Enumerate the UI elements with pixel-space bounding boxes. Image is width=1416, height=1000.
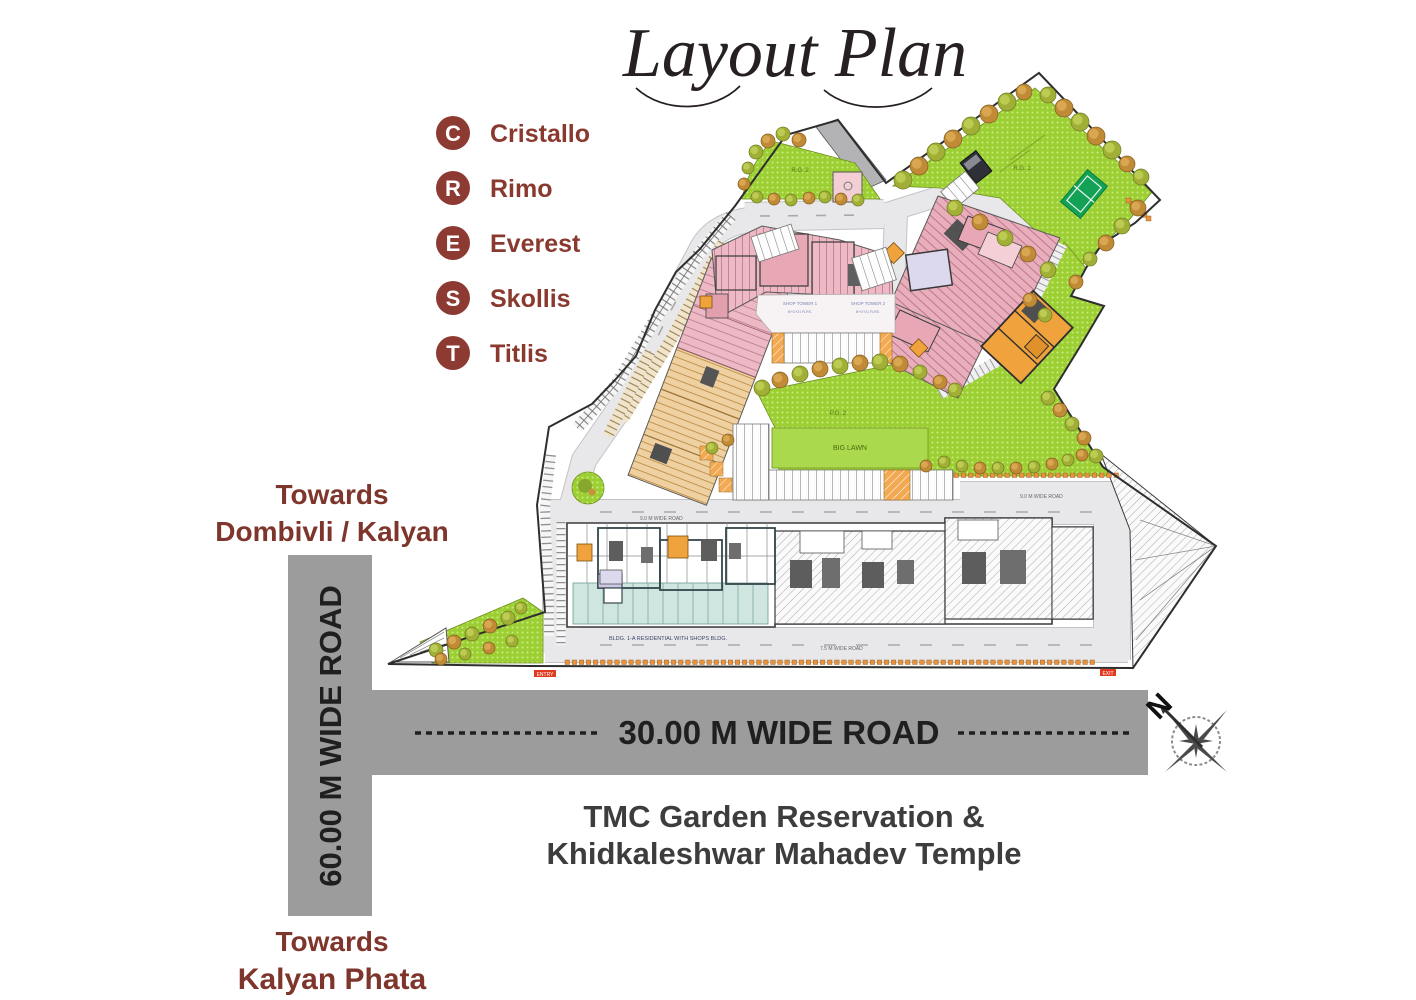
svg-text:9.0 M WIDE ROAD: 9.0 M WIDE ROAD <box>1020 494 1063 500</box>
svg-text:Towards: Towards <box>275 479 388 510</box>
svg-text:S: S <box>446 286 461 311</box>
svg-text:E: E <box>446 231 461 256</box>
svg-text:EXIT: EXIT <box>1102 671 1113 677</box>
svg-text:C: C <box>445 121 461 146</box>
svg-text:Kalyan Phata: Kalyan Phata <box>238 963 427 996</box>
svg-text:T: T <box>446 341 460 366</box>
svg-text:BIG LAWN: BIG LAWN <box>833 445 867 452</box>
svg-text:9.0 M WIDE ROAD: 9.0 M WIDE ROAD <box>640 516 683 522</box>
svg-text:30.00 M WIDE ROAD: 30.00 M WIDE ROAD <box>619 714 940 751</box>
svg-text:R.G. 1: R.G. 1 <box>1013 166 1031 172</box>
svg-text:B+G+21 FLRS.: B+G+21 FLRS. <box>788 310 812 314</box>
svg-text:R.G. 2: R.G. 2 <box>791 168 809 174</box>
svg-text:BLDG. 1-A RESIDENTIAL WITH SH: BLDG. 1-A RESIDENTIAL WITH SHOPS BLDG. <box>609 636 728 642</box>
svg-text:Everest: Everest <box>490 230 581 258</box>
svg-text:P.G. 2: P.G. 2 <box>830 411 847 417</box>
svg-text:Khidkaleshwar Mahadev Temple: Khidkaleshwar Mahadev Temple <box>547 836 1022 871</box>
svg-text:7.5 M WIDE ROAD: 7.5 M WIDE ROAD <box>820 646 863 652</box>
svg-text:Titlis: Titlis <box>490 340 548 368</box>
svg-text:SHOP TOWER 2: SHOP TOWER 2 <box>851 301 886 306</box>
svg-text:Skollis: Skollis <box>490 285 571 313</box>
svg-text:TMC Garden Reservation &: TMC Garden Reservation & <box>583 799 984 834</box>
svg-text:SHOP TOWER 1: SHOP TOWER 1 <box>783 301 818 306</box>
svg-text:Dombivli / Kalyan: Dombivli / Kalyan <box>215 516 448 547</box>
svg-text:Layout Plan: Layout Plan <box>622 15 967 92</box>
svg-text:R: R <box>445 176 461 201</box>
svg-text:Rimo: Rimo <box>490 175 553 203</box>
svg-text:B+G+21 FLRS.: B+G+21 FLRS. <box>856 310 880 314</box>
svg-text:60.00 M WIDE ROAD: 60.00 M WIDE ROAD <box>313 585 348 886</box>
svg-text:Cristallo: Cristallo <box>490 120 590 148</box>
svg-text:ENTRY: ENTRY <box>537 672 555 678</box>
svg-text:Towards: Towards <box>275 926 388 957</box>
